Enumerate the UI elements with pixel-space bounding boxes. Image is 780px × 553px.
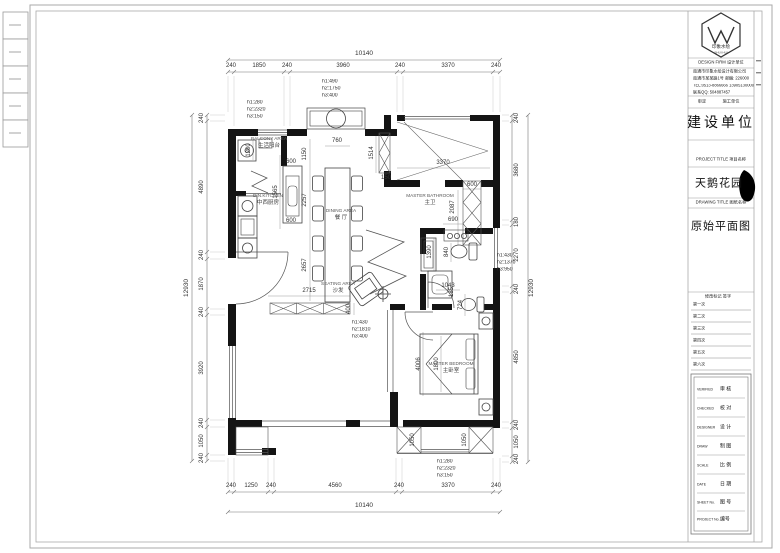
revision-row: 第六次 (693, 363, 705, 367)
height-note: h1:430 (352, 320, 368, 325)
room-label-en: DINING AREA (326, 209, 356, 214)
dim-label: 4890 (199, 180, 205, 193)
inner-dim-label: 690 (448, 217, 458, 223)
height-note: h3:400 (352, 334, 368, 339)
room-label-en: SEATING AREA (321, 282, 355, 287)
dim-label: 240 (226, 63, 236, 69)
sign-row-cn: 校 对 (720, 406, 731, 411)
sign-row-cn: 制 图 (720, 444, 731, 449)
inner-dim-label: 840 (444, 247, 450, 257)
company-line: 南通市印象水绘设计有限公司 (693, 70, 746, 74)
sign-row-en: DRAW (697, 445, 708, 448)
sheet-linework (0, 0, 780, 553)
inner-dim-label: 600 (286, 159, 296, 165)
sign-row-en: CHECKED (697, 407, 714, 410)
dim-label: 240 (491, 63, 501, 69)
dim-label: 1250 (244, 483, 257, 489)
project-name: 天鹅花园 (695, 179, 743, 190)
logo-text-cn: 印象水绘 (712, 45, 730, 50)
total-dim-label: 10140 (355, 51, 373, 58)
dim-label: 240 (282, 63, 292, 69)
height-note: h1:430 (497, 253, 513, 258)
height-note: h1:490 (322, 79, 338, 84)
inner-dim-label: 2087 (450, 200, 456, 213)
dim-label: 240 (514, 113, 520, 123)
sign-row-cn: 比 例 (720, 463, 731, 468)
sign-row-en: SHEET No. (697, 501, 715, 504)
height-note: h1:280 (437, 459, 453, 464)
sign-row-cn: 图 号 (720, 500, 731, 505)
revision-row: 第四次 (693, 339, 705, 343)
armchair (348, 271, 385, 307)
sign-row-cn: 审 核 (720, 387, 731, 392)
sign-row-cn: 日 期 (720, 482, 731, 487)
design-firm-row: DESIGN FIRM 设计单位 (698, 61, 744, 65)
dim-label: 240 (199, 418, 205, 428)
dim-label: 3370 (441, 63, 454, 69)
height-note: h2:1370 (497, 260, 515, 265)
revision-row: 第一次 (693, 303, 705, 307)
dim-label: 240 (514, 420, 520, 430)
inner-dim-label: 2715 (302, 288, 315, 294)
dim-label: 240 (491, 483, 501, 489)
inner-dim-label: 1050 (462, 433, 468, 446)
edge-strip-marks (756, 60, 761, 85)
room-label-en: MASTER BATHROOM (406, 194, 453, 199)
height-note: h3:150 (437, 473, 453, 478)
sign-row-en: DESIGNER (697, 426, 715, 429)
sign-row-en: VERIFIED (697, 388, 713, 391)
logo-hexagon-icon (702, 13, 740, 57)
company-line: TEL:0513-8866666 13905130000 (693, 84, 754, 88)
revision-row: 第五次 (693, 351, 705, 355)
total-dim-label: 12930 (529, 279, 536, 297)
dim-label: 3960 (336, 63, 349, 69)
dim-label: 240 (199, 307, 205, 317)
dim-label: 240 (394, 483, 404, 489)
dim-label: 240 (514, 454, 520, 464)
height-note: h3:150 (247, 114, 263, 119)
room-diagonal-marks (397, 122, 488, 180)
total-dim-label: 10140 (355, 503, 373, 510)
dim-label: 3370 (441, 483, 454, 489)
height-note: h3:950 (497, 267, 513, 272)
dim-label: 3680 (514, 163, 520, 176)
ceiling-light-icon (375, 286, 391, 302)
room-label-cn: 餐 厅 (335, 215, 348, 221)
kitchen-counter (238, 166, 302, 258)
sheet-frame (30, 5, 772, 548)
inner-dim-label: 760 (332, 138, 342, 144)
dimension-lines (190, 58, 530, 514)
dim-label: 240 (199, 453, 205, 463)
dim-label: 3920 (199, 361, 205, 374)
height-note: h2:2320 (247, 107, 265, 112)
dim-label: 240 (514, 284, 520, 294)
room-label-cn: 主卫 (424, 200, 435, 206)
inner-dim-label: 600 (286, 218, 296, 224)
dim-label: 1850 (252, 63, 265, 69)
company-line: 联系QQ: 504887457 (693, 91, 730, 95)
inner-dim-label: 1050 (410, 433, 416, 446)
drawing-sheet: 10140 240 1850 240 3960 240 3370 240 240… (0, 0, 780, 553)
height-note: h2:2320 (437, 466, 455, 471)
dim-label: 1050 (199, 434, 205, 447)
windows (230, 117, 498, 456)
inner-dim-label: 3370 (436, 160, 449, 166)
dim-label: 1870 (199, 277, 205, 290)
dim-label: 4850 (514, 350, 520, 363)
room-label-en: BALCONY AREA (251, 137, 287, 142)
walls (228, 115, 500, 455)
dim-label: 4560 (328, 483, 341, 489)
revision-header: 修改标记 签字 (705, 295, 731, 299)
dim-label: 180 (514, 217, 520, 227)
inner-dim-label: 1390 (427, 245, 433, 258)
sign-row-en: DATE (697, 483, 706, 486)
revision-row: 第三次 (693, 327, 705, 331)
total-dim-label: 12930 (184, 279, 191, 297)
room-label-cn: 中西厨房 (257, 200, 279, 206)
dim-label: 240 (199, 113, 205, 123)
approver-cell: 审定 (698, 100, 706, 104)
dim-label: 240 (266, 483, 276, 489)
room-label-cn: 生活阳台 (258, 143, 280, 149)
height-note: h2:1750 (322, 86, 340, 91)
inner-dim-label: 1200 (246, 143, 252, 156)
inner-dim-label: 600 (467, 182, 477, 188)
revision-row: 第二次 (693, 315, 705, 319)
room-label-en: MASTER BEDROOM (429, 362, 474, 367)
room-label-en: DIN.KITCHEN (253, 194, 283, 199)
sign-row-en: SCALE (697, 464, 708, 467)
contractor-cell: 施工单位 (723, 100, 740, 104)
room-label-cn: 主卧室 (443, 368, 460, 374)
height-note: h3:400 (322, 93, 338, 98)
fold-marks (3, 12, 28, 147)
logo-text-en: SHUI HUI (714, 52, 727, 55)
inner-dim-label: 724 (458, 300, 464, 310)
dim-label: 240 (226, 483, 236, 489)
dim-label: 1050 (514, 435, 520, 448)
inner-dim-label: 2257 (302, 193, 308, 206)
project-title-row: PROJECT TITLE 项目名称 (696, 158, 746, 162)
sign-row-cn: 设 计 (720, 425, 731, 430)
dim-label: 240 (395, 63, 405, 69)
inner-dim-label: 4006 (416, 357, 422, 370)
room-label-cn: 沙发 (332, 288, 343, 294)
inner-dim-label: 400 (346, 304, 352, 314)
bay-window (307, 108, 365, 129)
inner-dim-label: 185 (449, 287, 455, 297)
company-line: 南通市某某路1号 邮编: 226000 (693, 77, 749, 81)
sign-row-cn: 编号 (720, 517, 730, 522)
height-note: h2:1810 (352, 327, 370, 332)
drawing-title-row: DRAWING TITLE 图纸名称 (696, 201, 747, 205)
inner-dim-label: 150 (381, 175, 391, 181)
inner-dim-label: 1150 (302, 148, 308, 161)
construction-unit-title: 建设单位 (687, 117, 755, 131)
dim-label: 240 (199, 250, 205, 260)
inner-dim-label: 1514 (369, 146, 375, 159)
height-note: h1:280 (247, 100, 263, 105)
inner-dim-label: 2657 (302, 258, 308, 271)
drawing-name: 原始平面图 (691, 222, 751, 233)
sign-row-en: PROJECT No. (697, 518, 720, 521)
